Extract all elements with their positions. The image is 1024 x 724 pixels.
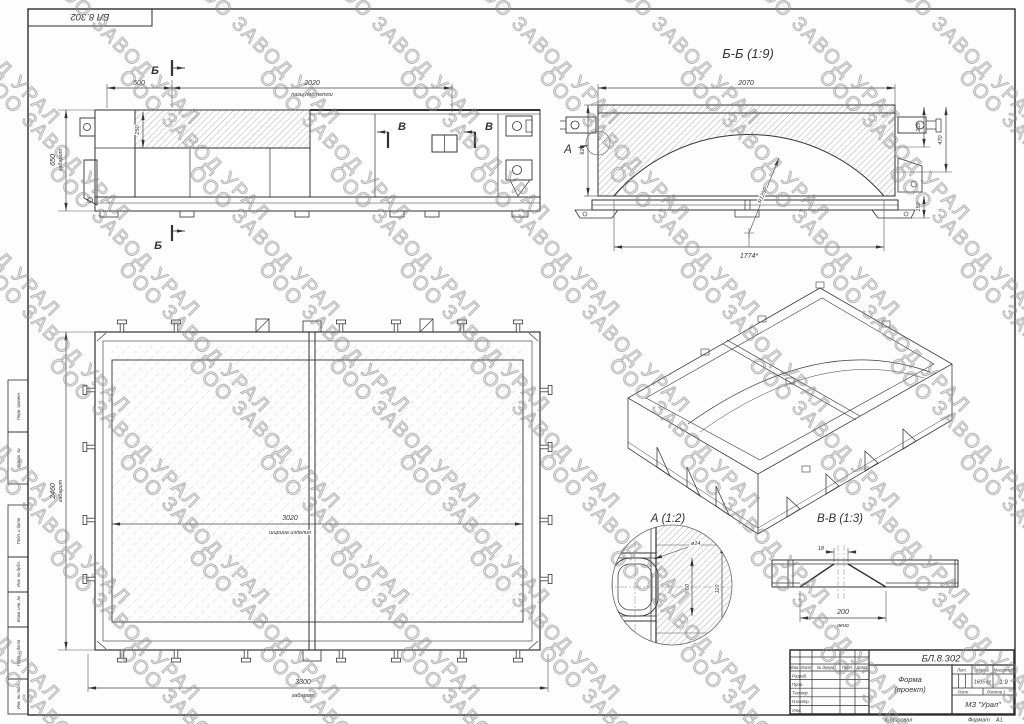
dim-2020: 2020: [303, 80, 320, 87]
mark-b-top: Б: [151, 65, 159, 77]
dim-110: 110: [715, 584, 721, 594]
dim-3300: 3300: [295, 679, 311, 686]
tb-name-2: (проект): [894, 685, 926, 694]
note-2020: пазы под петли: [291, 92, 332, 98]
tb-sheet-label: Лист: [957, 690, 969, 695]
tb-name-1: Форма: [898, 675, 922, 684]
tb-col-podp: Подп.: [842, 665, 853, 670]
tb-mass-label: Масса: [976, 668, 989, 673]
dim-650: 650: [50, 154, 57, 166]
margin-stamp-5: Подп. и дата: [16, 639, 21, 666]
mark-b-bottom: Б: [154, 240, 162, 252]
tb-lit-label: Лит.: [956, 668, 967, 673]
tb-col-data: Дата: [855, 665, 868, 670]
detail-a-view: А (1:2) ø14 60: [605, 513, 740, 650]
section-bb-view: Б-Б (1:9): [560, 46, 952, 260]
dim-250: 250: [135, 124, 141, 135]
note-3020: ширина изделия: [269, 530, 311, 536]
tb-company: МЗ "Урал": [965, 700, 1001, 709]
dim-3020: 3020: [282, 515, 298, 522]
tb-copied: Копировал: [885, 718, 912, 724]
tb-col-izm: Изм.: [791, 665, 800, 670]
tb-row-tkontr: Т.контр.: [792, 691, 809, 696]
dim-235: 235: [916, 121, 922, 132]
margin-stamp-1: Справ. №: [16, 448, 21, 467]
dim-470: 470: [938, 134, 944, 144]
corner-doc-number: БЛ 8.302: [70, 11, 110, 22]
dim-2460: 2460: [50, 483, 57, 500]
callout-a: А: [563, 144, 572, 156]
tb-col-dokum: № докум.: [817, 665, 835, 670]
plan-view: 2460 габарит 3020 ширина изделия 3300 га…: [50, 319, 552, 699]
drawing-sheet: БЛ 8.302 Перв. примен. Справ. № Подп. и …: [0, 0, 1024, 724]
margin-stamp-0: Перв. примен.: [16, 392, 21, 420]
dim-620: 620: [580, 144, 586, 154]
tb-row-utv: Утв.: [792, 708, 802, 713]
tb-mass-value: 1605 кг: [974, 680, 992, 686]
margin-stamp-4: Взам. инв. №: [16, 596, 21, 622]
tb-scale-label: Масштаб: [994, 668, 1014, 673]
dim-200: 200: [836, 609, 849, 616]
tb-row-prov: Пров.: [792, 682, 803, 687]
title-block: БЛ.8.302 Форма (проект) Лит. Масса Масшт…: [790, 650, 1014, 724]
tb-col-list: Лист: [800, 665, 812, 670]
detail-a-title: А (1:2): [650, 513, 686, 525]
tb-format-label: Формат: [968, 718, 990, 724]
tb-scale-value: 1:9: [999, 680, 1008, 686]
dim-2070: 2070: [737, 80, 754, 87]
note-3300: габарит: [292, 693, 315, 699]
tb-sheets-label: Листов 1: [986, 690, 1006, 695]
dim-r1250: R1250: [757, 186, 769, 204]
tb-row-nkontr: Н.контр.: [792, 699, 810, 704]
section-bb-title: Б-Б (1:9): [722, 46, 774, 61]
tb-format-value: А1: [995, 718, 1003, 724]
note-650: габарит: [58, 148, 64, 171]
dim-dia14: ø14: [691, 541, 700, 547]
section-vv-title: В-В (1:3): [817, 513, 863, 525]
tb-doc-number: БЛ.8.302: [922, 654, 962, 665]
dim-1774: 1774*: [740, 253, 759, 260]
tb-row-razrab: Разраб.: [792, 674, 807, 679]
note-okno: окно: [837, 623, 849, 629]
front-elevation-view: 500 2020 пазы под петли 650 габарит 250 …: [50, 60, 540, 252]
margin-stamp-6: Инв. № подл.: [16, 683, 21, 709]
mark-v-left: В: [398, 121, 406, 133]
dim-150: 150: [916, 201, 922, 211]
mark-v-right: В: [485, 121, 493, 133]
dim-60: 60: [685, 583, 691, 590]
isometric-view: [628, 282, 952, 534]
margin-stamps: Перв. примен. Справ. № Подп. и дата Инв.…: [8, 380, 28, 714]
margin-stamp-2: Подп. и дата: [16, 517, 21, 544]
section-vv-view: В-В (1:3) 18 200 окно: [772, 513, 958, 629]
dim-500: 500: [133, 80, 145, 87]
drawing-canvas: БЛ 8.302 Перв. примен. Справ. № Подп. и …: [0, 0, 1024, 724]
dim-18: 18: [818, 546, 825, 552]
margin-stamp-3: Инв. № дубл.: [16, 561, 21, 587]
corner-stamp: БЛ 8.302: [28, 9, 152, 26]
note-2460: габарит: [58, 479, 64, 502]
